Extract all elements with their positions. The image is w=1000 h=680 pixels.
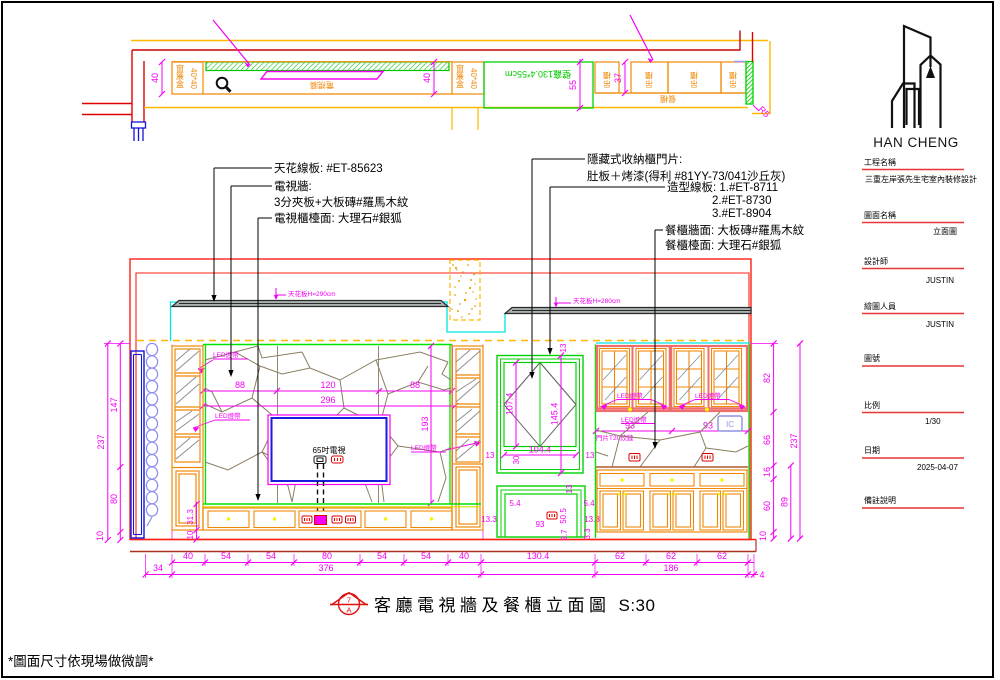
svg-text:3.3: 3.3 <box>583 528 592 540</box>
svg-text:130.4: 130.4 <box>527 551 550 561</box>
svg-text:電視牆:: 電視牆: <box>274 179 312 193</box>
svg-text:13: 13 <box>565 484 574 493</box>
svg-text:186: 186 <box>663 563 678 573</box>
svg-text:296: 296 <box>320 395 335 405</box>
svg-text:10: 10 <box>758 531 768 541</box>
svg-text:吊櫃: 吊櫃 <box>645 71 653 89</box>
svg-text:隱藏式收納櫃門片:: 隱藏式收納櫃門片: <box>587 152 682 166</box>
svg-text:餐櫃檯面: 大理石#銀狐: 餐櫃檯面: 大理石#銀狐 <box>665 238 782 252</box>
svg-text:16: 16 <box>762 467 772 477</box>
svg-text:吊櫃: 吊櫃 <box>603 71 611 89</box>
svg-text:電視櫃檯面: 大理石#銀狐: 電視櫃檯面: 大理石#銀狐 <box>274 211 402 225</box>
svg-text:比例: 比例 <box>864 400 880 410</box>
svg-text:31.3: 31.3 <box>186 509 195 525</box>
svg-text:2025-04-07: 2025-04-07 <box>917 463 958 472</box>
svg-text:145.4: 145.4 <box>550 403 560 426</box>
svg-text:1/30: 1/30 <box>925 417 941 426</box>
svg-text:93: 93 <box>536 520 545 529</box>
svg-text:30: 30 <box>512 455 521 464</box>
svg-text:104.4: 104.4 <box>529 445 552 455</box>
svg-text:窗簾盒: 窗簾盒 <box>176 63 184 89</box>
svg-text:圖號: 圖號 <box>864 353 880 363</box>
svg-text:40*40: 40*40 <box>189 68 198 89</box>
svg-text:JUSTIN: JUSTIN <box>926 276 954 285</box>
svg-text:*圖面尺寸依現場做微調*: *圖面尺寸依現場做微調* <box>8 654 154 669</box>
svg-text:7: 7 <box>347 596 351 605</box>
svg-text:LED燈帶: LED燈帶 <box>411 443 437 452</box>
svg-text:2.#ET-8730: 2.#ET-8730 <box>712 195 771 207</box>
svg-text:天花板H=290cm: 天花板H=290cm <box>288 289 336 298</box>
svg-text:繪圖人員: 繪圖人員 <box>864 301 896 311</box>
svg-text:66: 66 <box>762 435 772 445</box>
svg-text:壁龕130.4*55cm: 壁龕130.4*55cm <box>505 69 571 80</box>
svg-text:237: 237 <box>96 434 106 449</box>
svg-text:80: 80 <box>109 494 119 504</box>
svg-text:13: 13 <box>559 343 568 352</box>
svg-text:HAN CHENG: HAN CHENG <box>873 135 959 150</box>
svg-text:40: 40 <box>459 551 469 561</box>
svg-text:LED燈帶: LED燈帶 <box>695 391 721 400</box>
svg-text:88: 88 <box>235 380 245 390</box>
svg-text:54: 54 <box>377 551 387 561</box>
svg-text:立面圖: 立面圖 <box>933 226 957 236</box>
svg-text:備註說明: 備註說明 <box>864 495 896 505</box>
svg-text:13.3: 13.3 <box>584 515 600 524</box>
svg-text:93: 93 <box>625 421 635 431</box>
svg-text:107.4: 107.4 <box>505 393 515 416</box>
svg-text:13.3: 13.3 <box>481 515 497 524</box>
svg-text:50.5: 50.5 <box>559 508 568 524</box>
svg-text:34: 34 <box>153 563 163 573</box>
svg-text:肚板＋烤漆(得利 #81YY-73/041沙丘灰): 肚板＋烤漆(得利 #81YY-73/041沙丘灰) <box>587 169 785 183</box>
svg-text:13: 13 <box>586 451 595 460</box>
svg-text:電視牆: 電視牆 <box>310 81 334 91</box>
svg-text:5.4: 5.4 <box>509 499 521 508</box>
svg-text:3.#ET-8904: 3.#ET-8904 <box>712 208 772 220</box>
svg-text:LED燈帶: LED燈帶 <box>213 350 239 359</box>
svg-text:54: 54 <box>421 551 431 561</box>
svg-text:IC: IC <box>726 420 734 429</box>
svg-text:9.7: 9.7 <box>560 529 569 541</box>
svg-text:80: 80 <box>322 551 332 561</box>
svg-text:造型線板: 1.#ET-8711: 造型線板: 1.#ET-8711 <box>667 180 778 194</box>
svg-text:37: 37 <box>613 73 623 83</box>
svg-text:圖面名稱: 圖面名稱 <box>864 210 896 220</box>
svg-text:88: 88 <box>410 380 420 390</box>
svg-text:54: 54 <box>266 551 276 561</box>
svg-text:93: 93 <box>703 421 713 431</box>
svg-text:餐櫃: 餐櫃 <box>660 94 676 104</box>
svg-text:窗簾盒: 窗簾盒 <box>456 63 464 89</box>
svg-text:4: 4 <box>759 570 764 580</box>
svg-text:A: A <box>346 606 351 615</box>
svg-text:10: 10 <box>95 531 105 541</box>
svg-text:日期: 日期 <box>864 446 880 455</box>
svg-text:JUSTIN: JUSTIN <box>926 320 954 329</box>
svg-text:120: 120 <box>320 380 335 390</box>
svg-text:193: 193 <box>420 416 430 431</box>
svg-text:10: 10 <box>186 530 195 539</box>
svg-text:62: 62 <box>666 551 676 561</box>
svg-text:吊櫃: 吊櫃 <box>690 71 698 89</box>
svg-text:40: 40 <box>422 73 432 83</box>
svg-text:吊櫃: 吊櫃 <box>729 71 737 89</box>
svg-text:天花線板: #ET-85623: 天花線板: #ET-85623 <box>274 161 383 175</box>
svg-text:工程名稱: 工程名稱 <box>864 157 896 167</box>
svg-text:三重左岸張先生宅室內裝修設計: 三重左岸張先生宅室內裝修設計 <box>865 174 977 184</box>
svg-text:天花板H=280cm: 天花板H=280cm <box>573 296 621 305</box>
svg-text:LED燈帶: LED燈帶 <box>617 391 643 400</box>
svg-text:62: 62 <box>615 551 625 561</box>
svg-text:40*40: 40*40 <box>469 68 478 89</box>
svg-text:5.4: 5.4 <box>583 499 595 508</box>
svg-text:13: 13 <box>486 451 495 460</box>
svg-text:55: 55 <box>568 80 578 90</box>
svg-text:3分夾板+大板磚#羅馬木紋: 3分夾板+大板磚#羅馬木紋 <box>274 195 409 209</box>
svg-text:60: 60 <box>762 501 772 511</box>
svg-text:54: 54 <box>221 551 231 561</box>
svg-text:62: 62 <box>717 551 727 561</box>
svg-text:設計師: 設計師 <box>864 256 888 266</box>
svg-text:89: 89 <box>780 497 790 507</box>
svg-text:40: 40 <box>150 73 160 83</box>
svg-text:82: 82 <box>762 373 772 383</box>
svg-text:237: 237 <box>789 433 799 448</box>
svg-text:65吋電視: 65吋電視 <box>313 445 346 455</box>
svg-text:376: 376 <box>318 563 333 573</box>
svg-text:40: 40 <box>183 551 193 561</box>
svg-text:LED燈帶: LED燈帶 <box>215 411 241 420</box>
svg-text:147: 147 <box>109 397 119 412</box>
svg-text:餐櫃牆面: 大板磚#羅馬木紋: 餐櫃牆面: 大板磚#羅馬木紋 <box>665 223 805 237</box>
